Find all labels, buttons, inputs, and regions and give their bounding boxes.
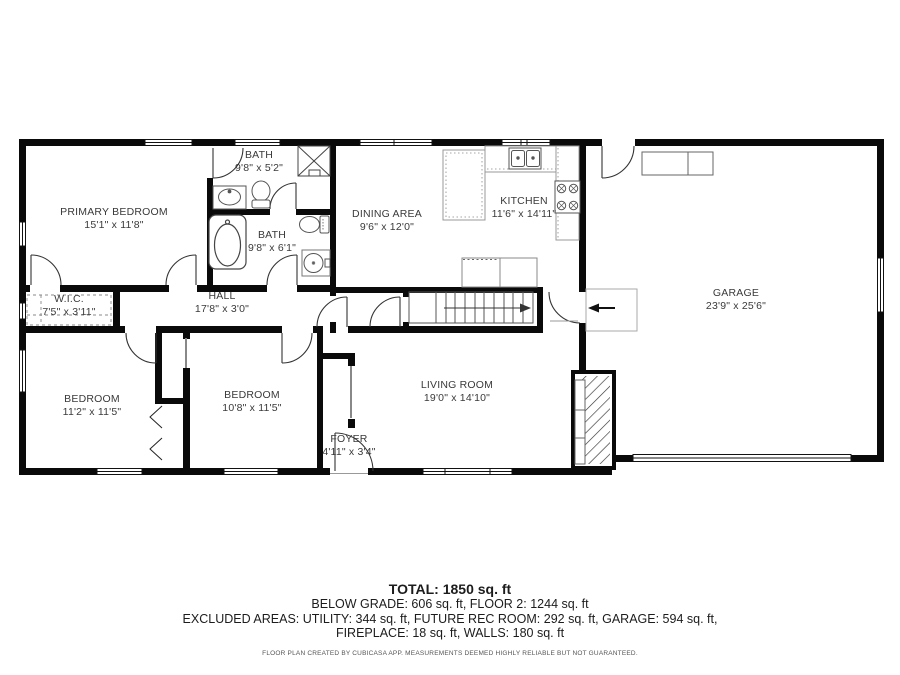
room-label-garage: GARAGE23'9" x 25'6" [706,287,766,313]
window-bottom-bedroom-right [224,469,278,475]
stairs-direction-arrow [444,304,531,313]
door-bedroom-left [126,333,156,363]
bifold-closet-doors [150,406,162,460]
fireplace [573,372,614,468]
counter-over-stairs-left [462,258,500,287]
bath2-toilet [300,216,330,233]
floorplan-drawing [0,0,900,560]
garage-cabinet [642,152,713,175]
room-label-dining-area: DINING AREA9'6" x 12'0" [352,208,422,234]
floor-plan-page: PRIMARY BEDROOM15'1" x 11'8" BATH9'8" x … [0,0,900,675]
garage-door [633,455,851,462]
room-label-bedroom-left: BEDROOM11'2" x 11'5" [63,393,122,419]
bath1-toilet [252,181,270,208]
window-top-kitchen [502,140,550,146]
summary-line-1: BELOW GRADE: 606 sq. ft, FLOOR 2: 1244 s… [0,597,900,612]
summary-line-3: FIREPLACE: 18 sq. ft, WALLS: 180 sq. ft [0,626,900,641]
room-label-wic: W.I.C.7'5" x 3'11" [42,293,95,319]
stove [555,181,580,213]
door-bedroom-right [282,333,312,363]
bath2-sink [302,250,330,276]
door-wic [31,255,61,285]
stairs [409,292,533,323]
door-side-entry [549,292,580,323]
window-left-primary [20,222,26,246]
room-label-bath-2: BATH9'8" x 6'1" [248,229,296,255]
room-label-bath-1: BATH9'8" x 5'2" [235,149,283,175]
room-label-bedroom-right: BEDROOM10'8" x 11'5" [222,389,281,415]
summary-line-2: EXCLUDED AREAS: UTILITY: 344 sq. ft, FUT… [0,612,900,627]
door-garage-back [602,146,634,178]
bathtub [209,215,246,269]
door-primary-hall [166,255,196,285]
room-label-kitchen: KITCHEN11'6" x 14'11" [492,195,557,221]
summary-disclaimer: FLOOR PLAN CREATED BY CUBICASA APP. MEAS… [0,650,900,657]
bath1-vanity-sink [213,186,246,209]
window-left-wic [20,303,26,319]
kitchen-island-counter [443,150,485,220]
stairs-landing [409,292,436,323]
window-bottom-living [423,469,512,475]
room-label-living-room: LIVING ROOM19'0" x 14'10" [421,379,493,405]
room-label-primary-bedroom: PRIMARY BEDROOM15'1" x 11'8" [60,206,168,232]
garage-fixtures [586,152,713,331]
room-label-hall: HALL17'8" x 3'0" [195,290,249,316]
window-right-garage [878,258,884,312]
summary-total: TOTAL: 1850 sq. ft [0,581,900,597]
area-summary: TOTAL: 1850 sq. ft BELOW GRADE: 606 sq. … [0,581,900,657]
window-top-bath [235,140,280,146]
window-top-primary [145,140,192,146]
window-left-bedroom [20,350,26,392]
room-label-foyer: FOYER4'11" x 3'4" [322,433,375,459]
kitchen-sink [509,148,541,169]
shower [298,146,330,176]
window-bottom-bedroom-left [97,469,142,475]
door-basement-stairs [370,297,400,327]
window-top-dining [360,140,432,146]
counter-over-stairs-right [500,258,537,287]
door-bath1-bath2 [270,183,296,209]
door-bath2-hall [267,255,297,285]
